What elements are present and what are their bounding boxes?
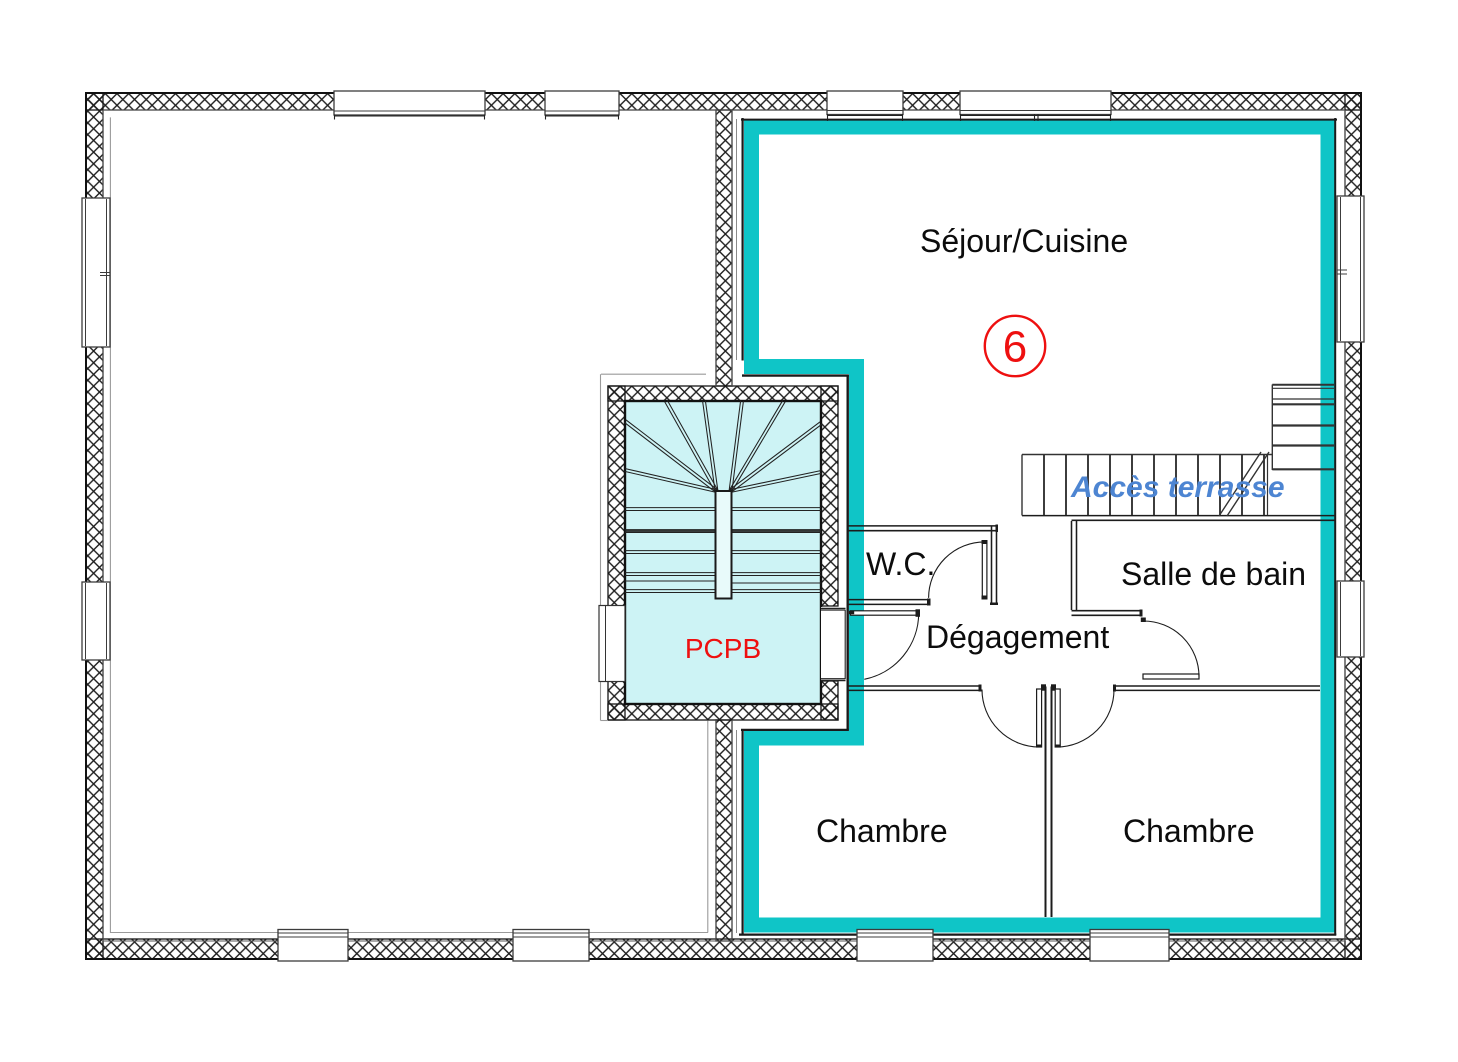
svg-text:6: 6 xyxy=(1003,323,1027,372)
svg-text:Chambre: Chambre xyxy=(1123,813,1255,849)
svg-text:PCPB: PCPB xyxy=(685,633,761,664)
svg-text:Accès terrasse: Accès terrasse xyxy=(1070,471,1285,504)
svg-text:Dégagement: Dégagement xyxy=(926,619,1109,655)
svg-text:Chambre: Chambre xyxy=(816,813,948,849)
svg-text:Séjour/Cuisine: Séjour/Cuisine xyxy=(920,223,1128,259)
svg-text:W.C.: W.C. xyxy=(866,546,935,582)
svg-text:Salle de bain: Salle de bain xyxy=(1121,556,1306,592)
